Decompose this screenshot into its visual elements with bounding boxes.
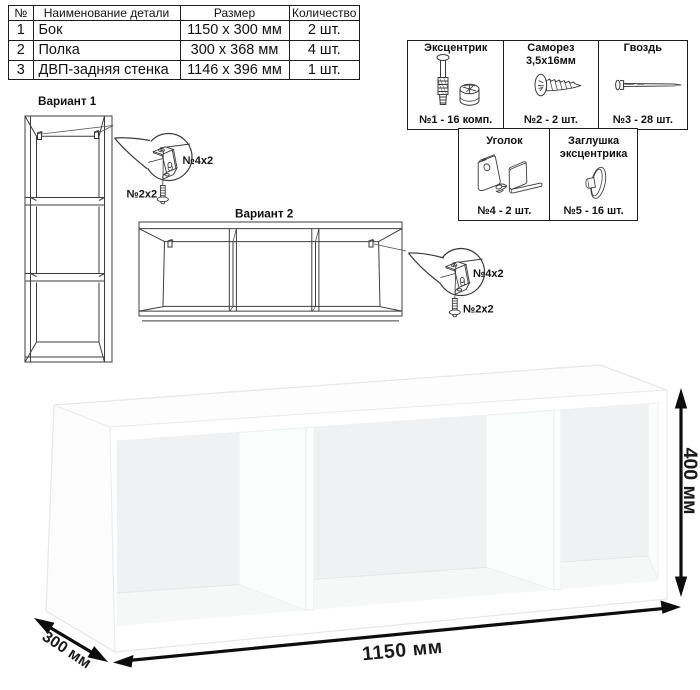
svg-text:№2х2: №2х2 xyxy=(463,304,494,316)
svg-text:№2х2: №2х2 xyxy=(127,189,158,201)
svg-text:400 мм: 400 мм xyxy=(679,448,700,515)
svg-text:№4х2: №4х2 xyxy=(473,268,504,280)
svg-text:№4х2: №4х2 xyxy=(183,155,214,167)
svg-text:Вариант 1: Вариант 1 xyxy=(38,95,97,108)
svg-text:Вариант 2: Вариант 2 xyxy=(235,208,294,221)
svg-text:1150 мм: 1150 мм xyxy=(361,636,444,666)
